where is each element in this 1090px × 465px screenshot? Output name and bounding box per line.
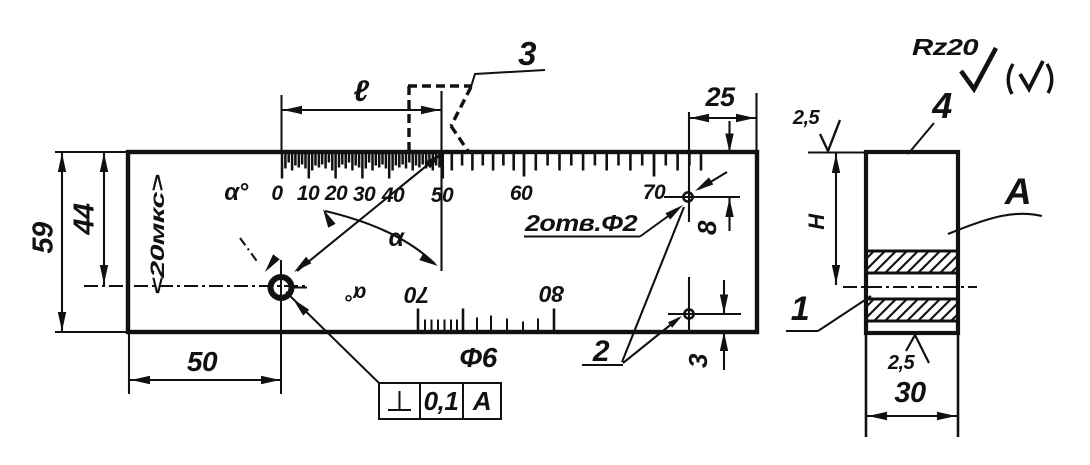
svg-text:3: 3 [683,353,713,368]
svg-text:1: 1 [791,290,809,328]
svg-text:0,1: 0,1 [424,386,459,416]
svg-text:44: 44 [69,203,101,236]
svg-text:2,5: 2,5 [792,107,821,129]
svg-text:70: 70 [643,181,666,204]
svg-text:2,5: 2,5 [887,352,916,374]
svg-text:ℓ: ℓ [354,75,370,108]
svg-text:10: 10 [297,182,320,205]
svg-text:0: 0 [271,182,283,205]
svg-text:α°: α° [224,179,248,206]
svg-text:25: 25 [704,82,736,112]
svg-text:70: 70 [404,282,429,308]
svg-text:A: A [472,386,491,416]
svg-text:30: 30 [353,183,376,206]
svg-text:50: 50 [187,346,218,377]
svg-text:59: 59 [28,222,60,254]
svg-text:α°: α° [345,281,367,304]
svg-text:2: 2 [592,335,610,368]
svg-text:60: 60 [510,182,533,205]
svg-text:80: 80 [539,281,564,307]
svg-text:Rz20: Rz20 [912,34,979,60]
svg-text:3: 3 [518,35,536,72]
svg-text:30: 30 [894,377,926,409]
svg-text:A: A [1004,171,1031,212]
svg-text:20: 20 [324,182,348,205]
svg-text:2отв.Φ2: 2отв.Φ2 [524,210,638,236]
svg-text:α: α [388,224,405,252]
svg-text:<20мкс>: <20мкс> [147,175,169,295]
svg-text:8: 8 [692,220,722,235]
svg-text:Φ6: Φ6 [459,342,498,373]
svg-text:H: H [804,213,829,230]
svg-text:4: 4 [931,85,952,126]
